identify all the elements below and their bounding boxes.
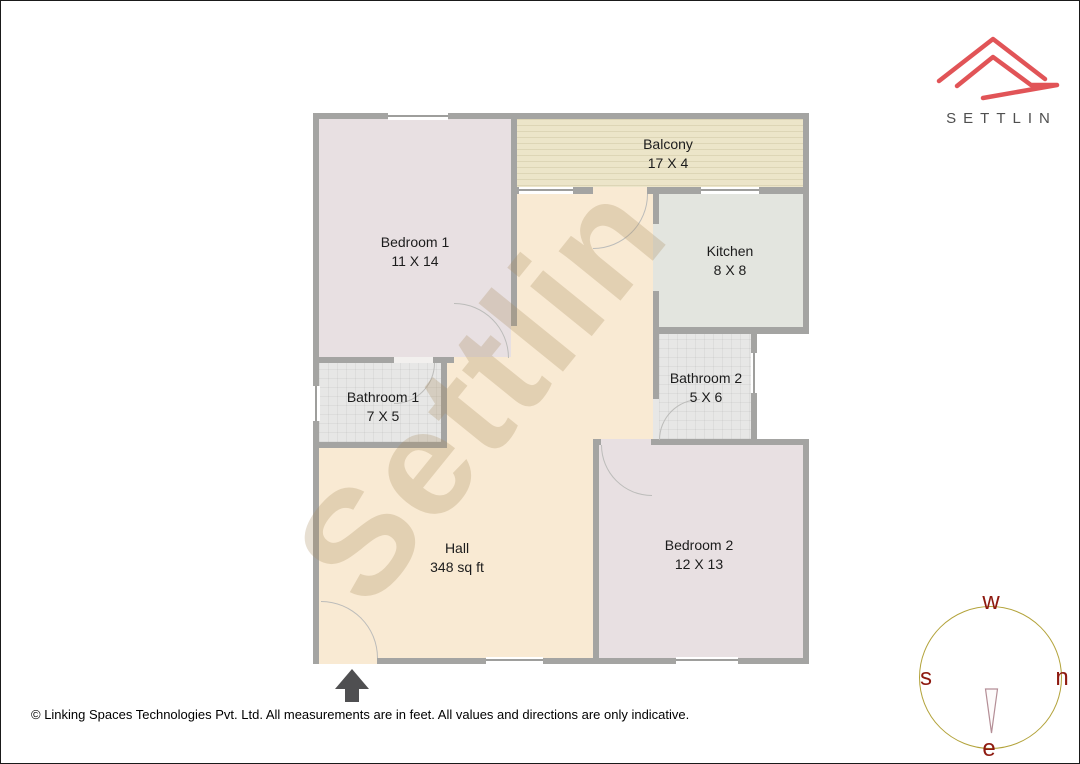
wall (653, 327, 809, 334)
brand-logo: SETTLIN (931, 29, 1065, 127)
wall (653, 194, 659, 224)
window-bedroom1 (388, 113, 448, 120)
window-hall-balcony (519, 187, 573, 194)
compass-east-label: e (982, 735, 995, 763)
compass-north-label: n (1055, 664, 1068, 692)
room-label-bathroom2: Bathroom 2 5 X 6 (646, 370, 766, 406)
door-opening-kitchen (653, 224, 659, 291)
room-label-bathroom1: Bathroom 1 7 X 5 (313, 389, 453, 425)
room-label-kitchen: Kitchen 8 X 8 (660, 243, 800, 279)
floorplan-page: SETTLIN (0, 0, 1080, 764)
wall (313, 442, 447, 448)
window-kitchen-balcony (701, 187, 759, 194)
room-label-bedroom1: Bedroom 1 11 X 14 (325, 234, 505, 270)
disclaimer-text: © Linking Spaces Technologies Pvt. Ltd. … (31, 707, 689, 722)
wall (593, 439, 599, 658)
wall (313, 357, 394, 363)
wall (511, 113, 517, 326)
window-hall (486, 657, 543, 664)
door-opening-balcony (593, 187, 647, 194)
entrance-arrow-icon (335, 669, 369, 689)
door-opening-entrance (319, 657, 377, 664)
entrance-arrow-stem (345, 688, 359, 702)
compass-needle (919, 606, 1064, 751)
window-bedroom2 (676, 657, 738, 664)
compass-west-label: w (982, 588, 999, 616)
compass-south-label: s (920, 664, 932, 692)
room-label-balcony: Balcony 17 X 4 (578, 136, 758, 172)
compass-icon: w s n e (919, 606, 1064, 751)
room-label-hall: Hall 348 sq ft (367, 540, 547, 576)
room-label-bedroom2: Bedroom 2 12 X 13 (609, 537, 789, 573)
brand-name: SETTLIN (931, 110, 1065, 127)
settlin-house-icon (931, 29, 1065, 101)
